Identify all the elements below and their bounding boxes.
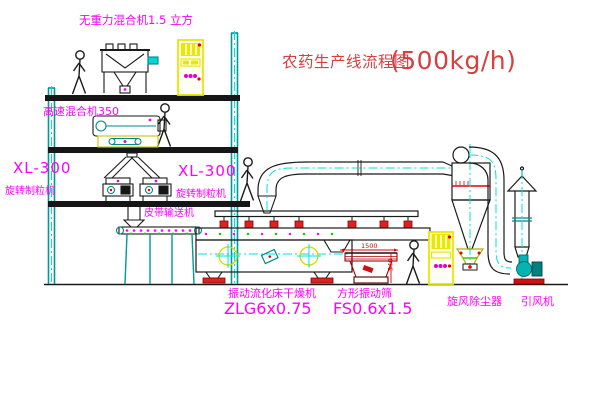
label-granulator-right-name: 旋转制粒机 — [176, 187, 226, 200]
label-fan: 引风机 — [521, 294, 554, 308]
label-granulator-left-model: XL-300 — [13, 159, 71, 177]
label-dryer-model: ZLG6x0.75 — [224, 299, 312, 318]
label-screen-model: FS0.6x1.5 — [333, 299, 412, 318]
label-high-speed-mixer: 高速混合机350 — [43, 104, 119, 118]
granulator-left-machine — [103, 178, 133, 201]
label-belt-conveyor: 皮带输送机 — [144, 206, 194, 219]
label-gravity-mixer: 无重力混合机1.5 立方 — [79, 13, 193, 27]
label-cyclone: 旋风除尘器 — [447, 294, 502, 308]
control-cabinet-top — [178, 40, 203, 95]
building-frame — [48, 31, 238, 284]
exhaust-elbow-duct — [258, 160, 452, 213]
title-capacity: (500kg/h) — [390, 46, 516, 75]
gravity-mixer — [100, 44, 158, 93]
label-screen-name: 方形振动筛 — [337, 286, 392, 300]
dim-screen-height: 540 — [387, 259, 395, 271]
granulator-right-machine — [140, 178, 171, 201]
process-flow-drawing: 无重力混合机1.5 立方 农药生产线流程图 (500kg/h) 高速混合机350… — [0, 0, 600, 403]
control-cabinet-screen — [429, 232, 453, 284]
dim-screen-length: 1500 — [361, 242, 378, 250]
label-granulator-left-name: 旋转制粒机 — [5, 184, 55, 197]
high-speed-mixer — [93, 116, 166, 147]
discharge-chute — [124, 207, 144, 227]
worker-top-floor — [73, 51, 86, 94]
label-dryer-name: 振动流化床干燥机 — [228, 286, 316, 300]
label-granulator-right-model: XL-300 — [178, 162, 236, 180]
y-chute — [104, 153, 160, 178]
worker-granulator-floor — [241, 158, 254, 201]
worker-ground — [407, 241, 420, 284]
belt-conveyor-machine — [117, 227, 202, 284]
induced-draft-fan-machine — [514, 255, 544, 284]
